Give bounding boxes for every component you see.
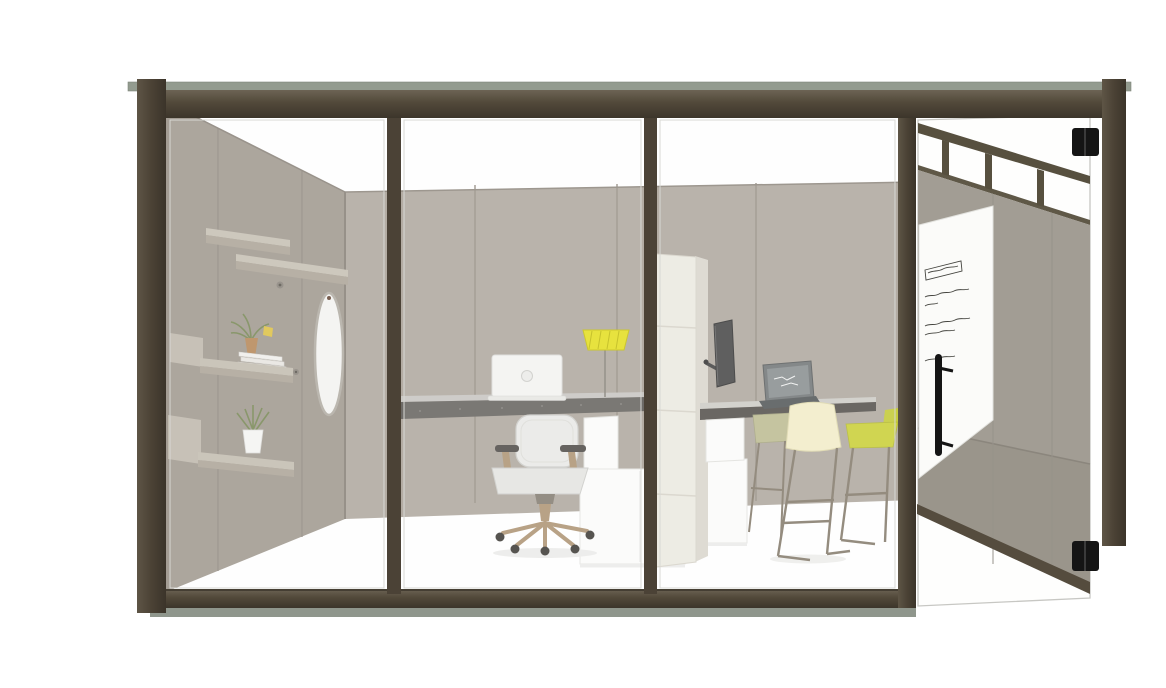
- open-door: [917, 115, 1090, 606]
- top-cap: [128, 82, 1131, 91]
- header-beam: [137, 90, 1126, 118]
- door-hinge-bottom: [1072, 541, 1099, 571]
- office-pod-rendering: Office pod rendering: [40, 16, 1166, 672]
- right-post: [1102, 79, 1126, 546]
- bottom-rail: [166, 589, 898, 608]
- door-jamb: [898, 118, 916, 608]
- glass-panel-3: [660, 120, 895, 588]
- mullion: [644, 118, 657, 594]
- scene-canvas: Office pod rendering: [40, 16, 1166, 672]
- glass-panel-1: [170, 120, 384, 588]
- door-hinge-top: [1072, 128, 1099, 156]
- base-plinth: [150, 608, 916, 617]
- glass-panel-2: [404, 120, 641, 588]
- mullion: [387, 118, 401, 594]
- left-post: [137, 79, 166, 613]
